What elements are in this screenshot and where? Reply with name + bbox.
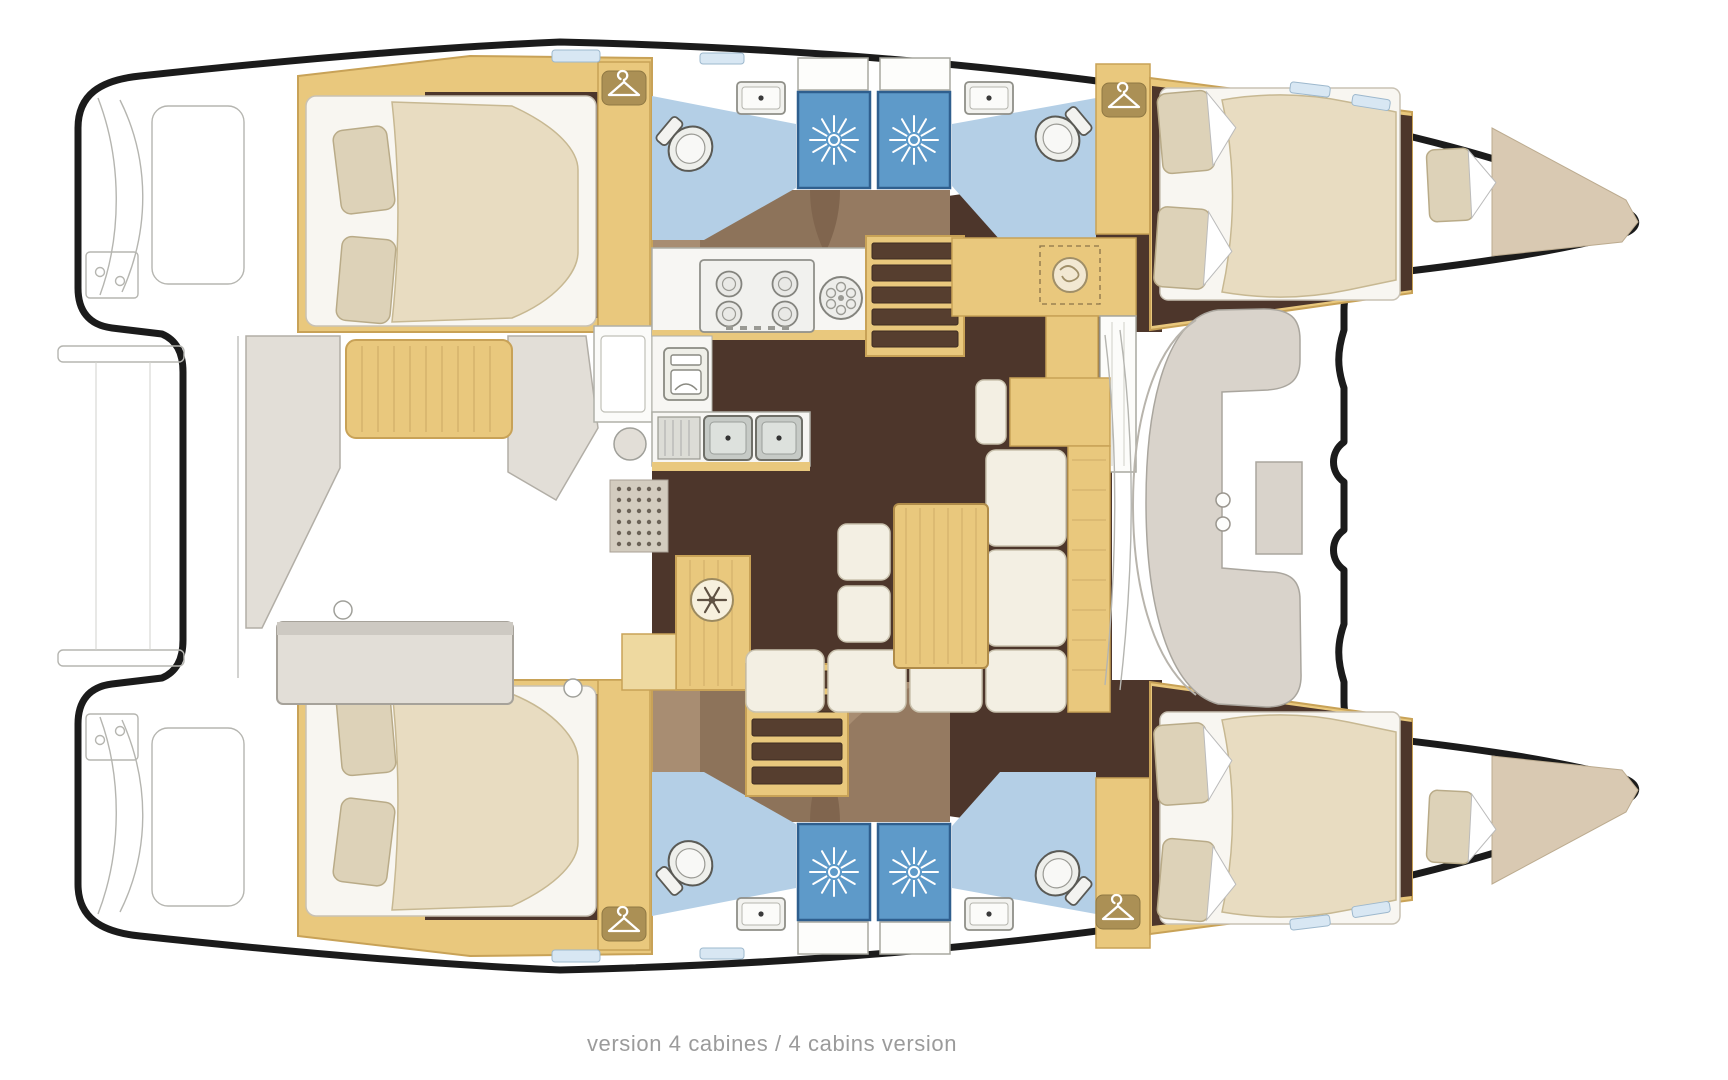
caption: version 4 cabines / 4 cabins version [587, 1031, 957, 1057]
entrance-counter [1046, 316, 1098, 380]
hanger-icon [1102, 83, 1146, 117]
sofa-side-table [1010, 378, 1110, 446]
icebox-icon [1053, 258, 1087, 292]
sofa-cushion [976, 380, 1006, 444]
sofa-side-strip [1068, 446, 1110, 712]
sink-double [652, 412, 810, 471]
sofa-cushion [986, 650, 1066, 712]
salon-table [894, 504, 988, 668]
fridge-cabinet [676, 556, 750, 690]
sofa-cushion [746, 650, 824, 712]
sofa-cushion [986, 550, 1066, 646]
burner-icon [820, 277, 862, 319]
boat-floor-plan [0, 0, 1728, 1080]
cockpit-table [277, 622, 513, 704]
oven-icon [664, 348, 708, 400]
floor-grate [610, 480, 668, 552]
stairs-port [866, 236, 964, 356]
stool [614, 428, 646, 460]
hanger-icon [602, 907, 646, 941]
galley-side-panel [622, 634, 676, 690]
mast-step [1256, 462, 1302, 554]
hanger-icon [602, 71, 646, 105]
starboard-hull [86, 680, 1638, 962]
deck-fitting [1216, 517, 1230, 531]
sofa-cushion [986, 450, 1066, 546]
aft-platform [58, 346, 184, 666]
deck-fitting [334, 601, 352, 619]
hanger-icon [1096, 895, 1140, 929]
deck-fitting [564, 679, 582, 697]
stool [838, 586, 890, 642]
cockpit-bench [346, 340, 512, 438]
stool [838, 524, 890, 580]
deck-fitting [1216, 493, 1230, 507]
floor-plan: version 4 cabines / 4 cabins version [0, 0, 1728, 1080]
stove-icon [700, 260, 814, 332]
